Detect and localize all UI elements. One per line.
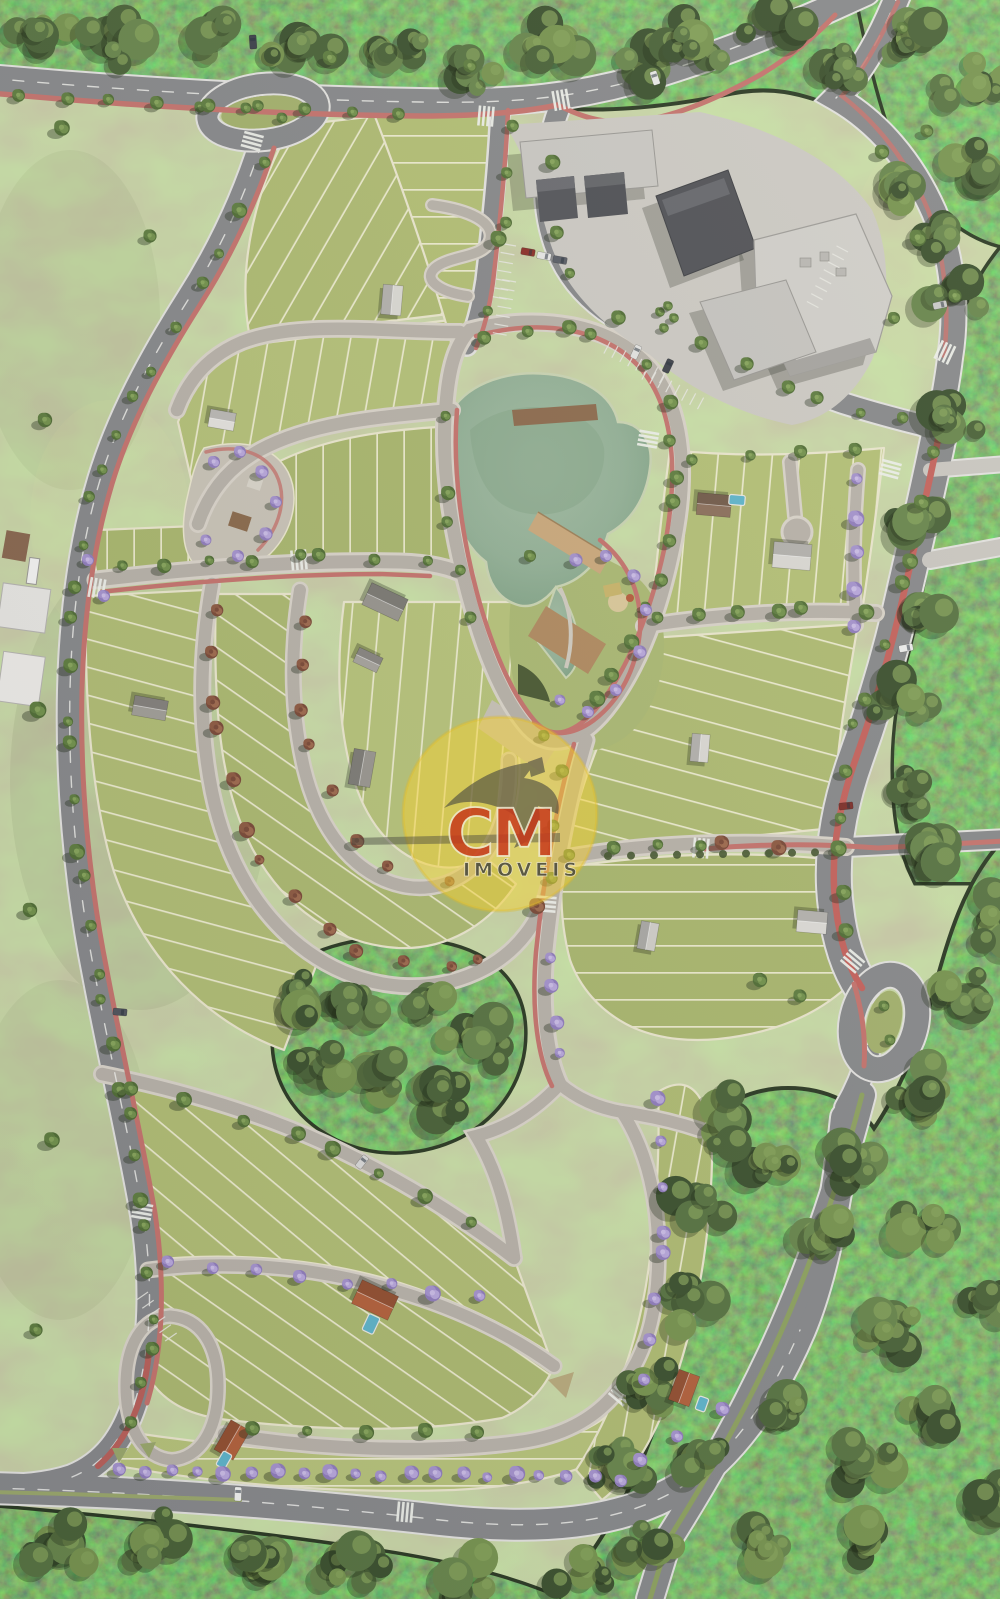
subtitle-text: IMÓVEIS <box>463 857 581 881</box>
masterplan-svg: CM IMÓVEIS <box>0 0 1000 1599</box>
masterplan-render: CM IMÓVEIS <box>0 0 1000 1599</box>
